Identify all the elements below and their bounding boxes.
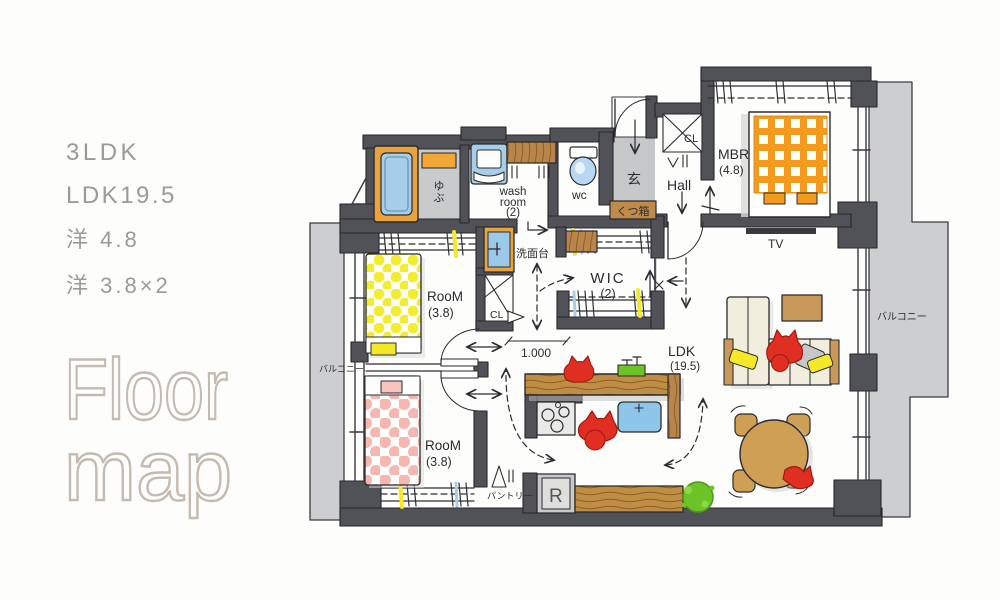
svg-text:(3.8): (3.8) [428,306,454,320]
svg-text:バルコニー: バルコニー [877,311,927,323]
svg-text:洋 3.8×2: 洋 3.8×2 [66,273,171,298]
svg-text:TV: TV [768,237,783,251]
svg-text:玄: 玄 [627,171,641,187]
svg-text:R: R [549,486,563,507]
svg-text:(19.5): (19.5) [670,361,700,373]
svg-text:くつ箱: くつ箱 [617,204,650,218]
svg-text:MBR: MBR [718,146,749,162]
svg-text:洗面台: 洗面台 [516,246,549,260]
svg-text:3LDK: 3LDK [66,139,140,166]
svg-text:(2): (2) [600,287,615,301]
svg-text:バルコニー: バルコニー [319,364,364,374]
svg-text:(4.8): (4.8) [719,163,744,177]
svg-text:wc: wc [571,188,587,202]
svg-text:RooM: RooM [427,289,463,304]
svg-text:1.000: 1.000 [521,346,551,360]
svg-text:(2): (2) [506,207,520,219]
svg-text:CL: CL [684,133,698,145]
svg-text:RooM: RooM [425,438,461,453]
svg-text:LDK19.5: LDK19.5 [66,182,177,209]
svg-text:(3.8): (3.8) [426,455,452,469]
svg-text:map: map [64,423,232,519]
svg-text:Hall: Hall [667,177,691,193]
svg-text:CL: CL [490,309,504,321]
svg-text:WIC: WIC [590,270,625,287]
svg-text:パントリー: パントリー [487,491,532,501]
svg-text:LDK: LDK [668,343,696,359]
svg-text:ゆぶ: ゆぶ [432,180,445,204]
svg-text:洋 4.8: 洋 4.8 [66,227,140,252]
